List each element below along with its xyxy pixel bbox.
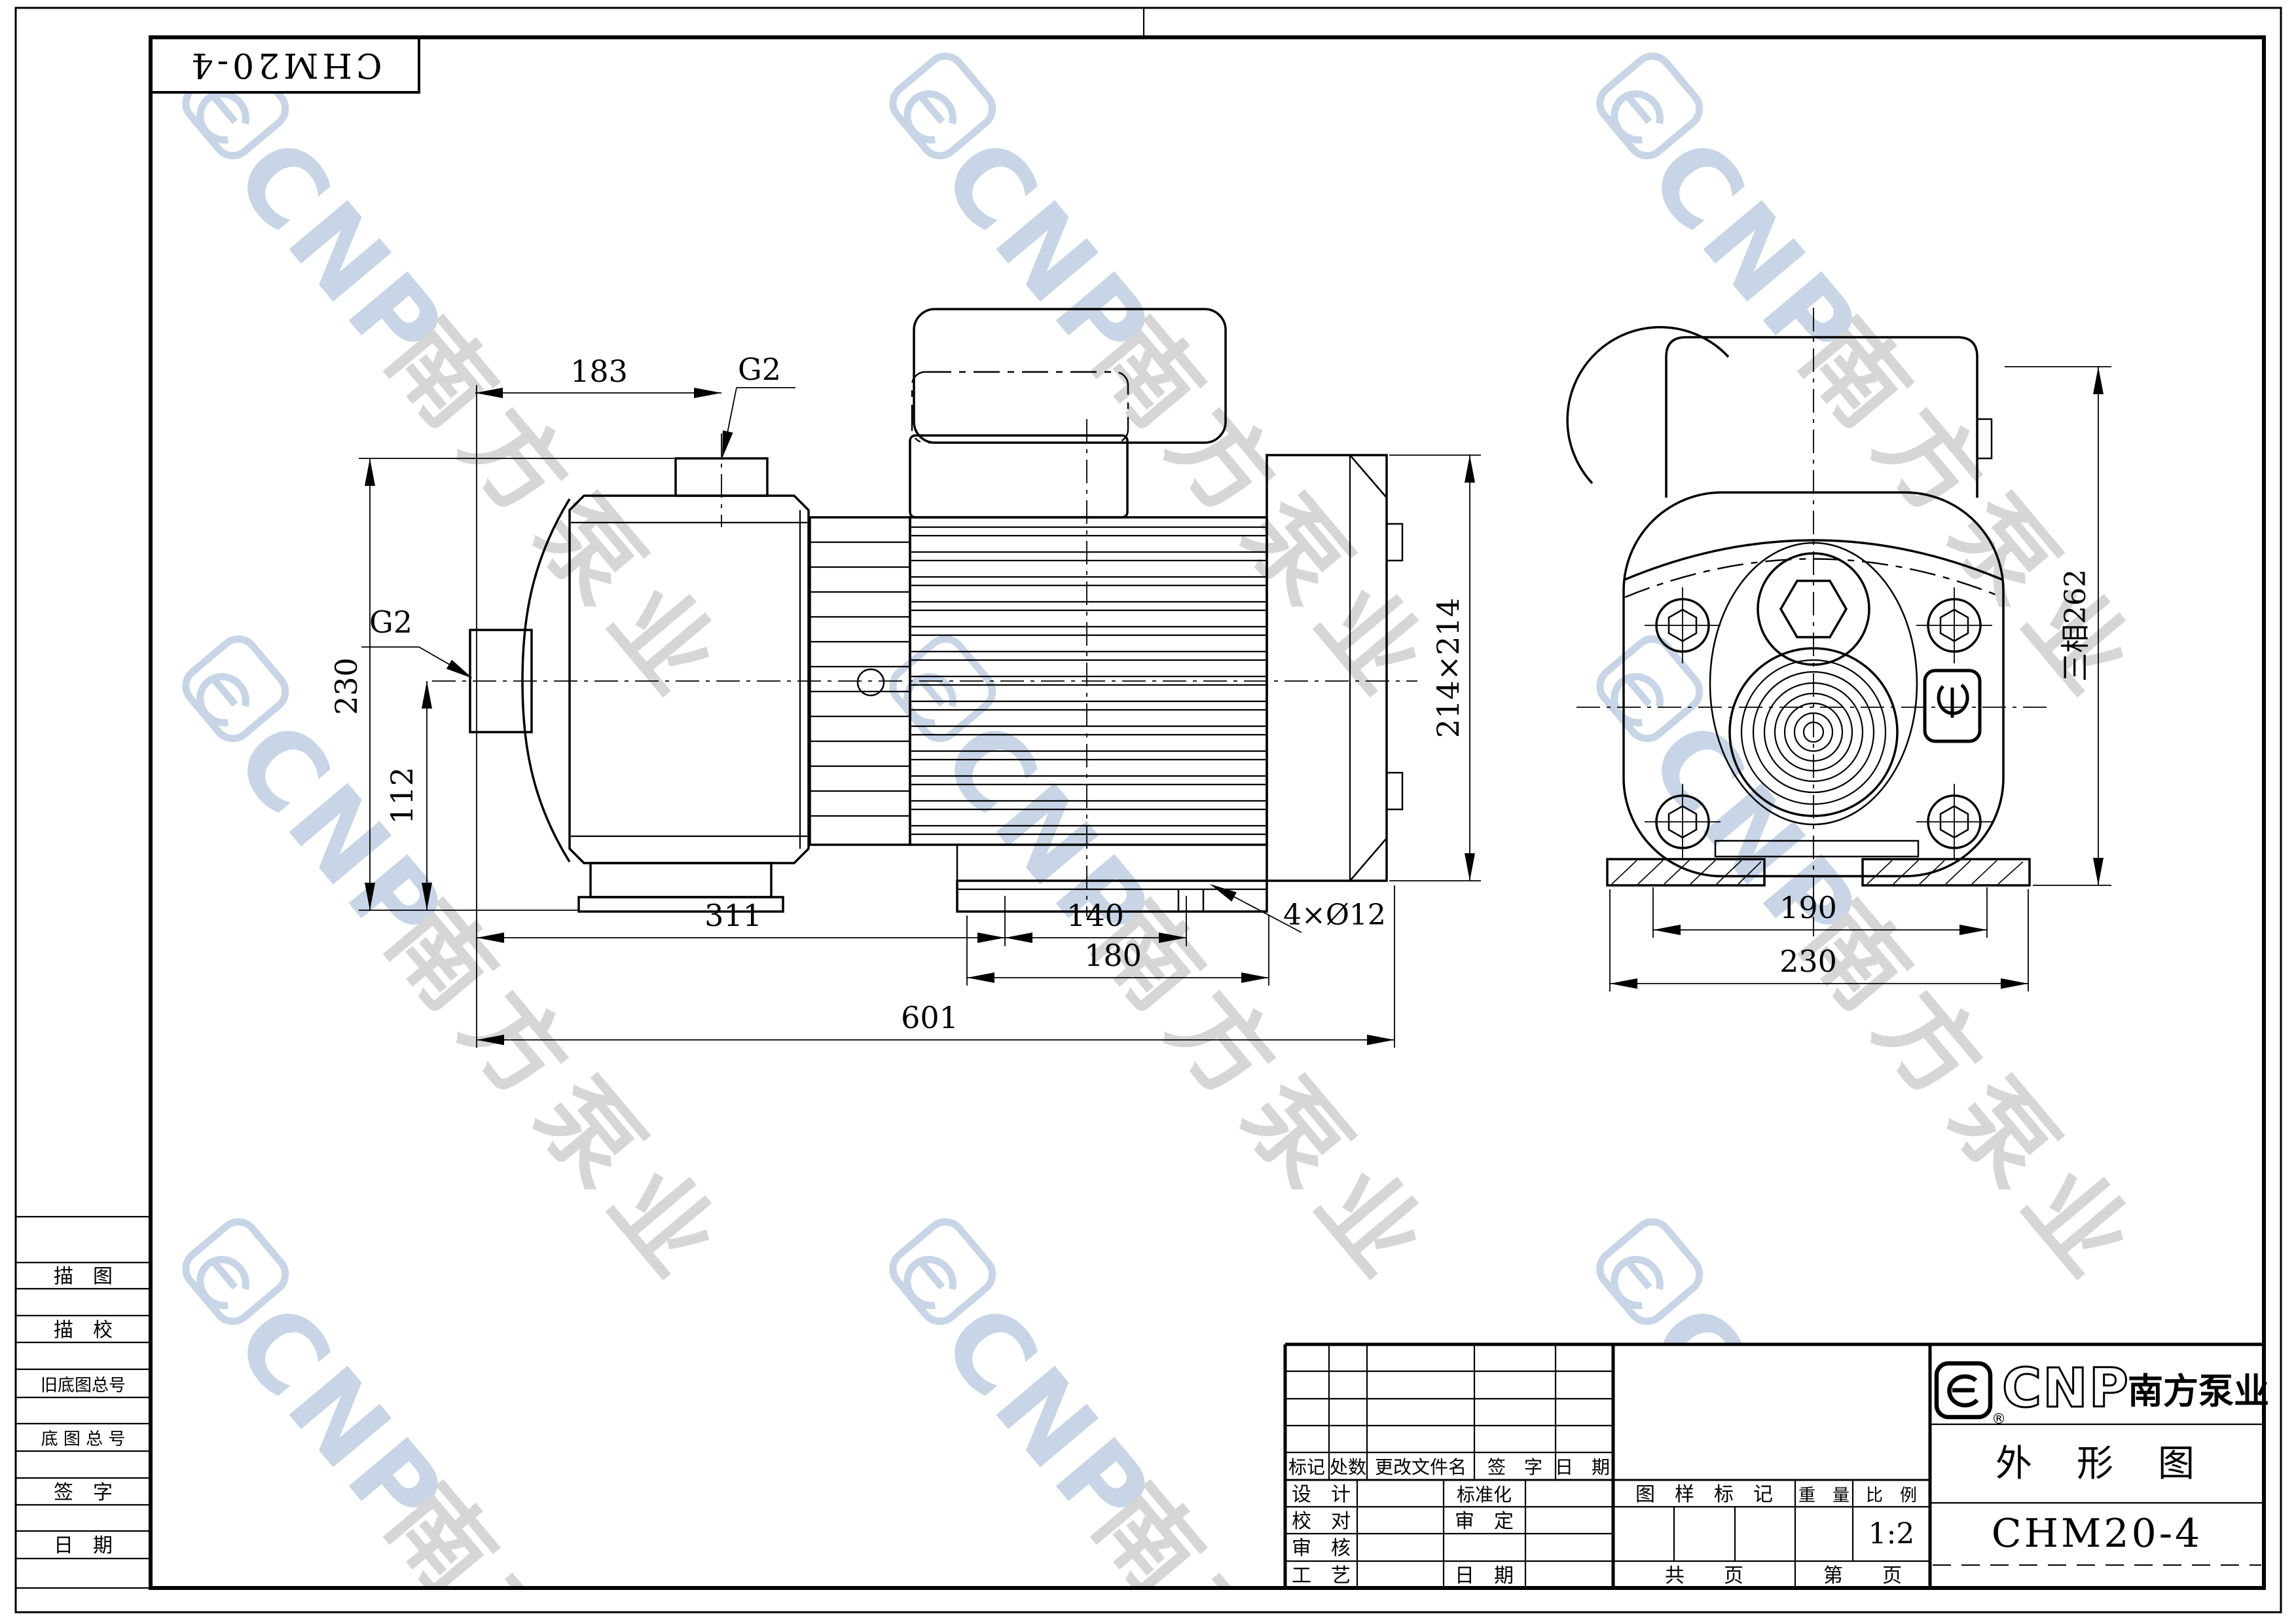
dim-230-end: 230 <box>1779 944 1837 979</box>
rev-count-header: 处数 <box>1330 1456 1366 1478</box>
sidebar-item-base-no: 底 图 总 号 <box>41 1430 126 1449</box>
logo-cjk-text: 南方泵业 <box>2128 1371 2269 1412</box>
sidebar-item-date: 日 期 <box>54 1534 113 1557</box>
dim-190: 190 <box>1779 890 1837 925</box>
rev-sign-header: 签 字 <box>1487 1456 1542 1478</box>
dim-262-three-phase: 三相262 <box>2059 569 2092 682</box>
rev-date-header: 日 期 <box>1555 1456 1610 1478</box>
sig-approve: 审 定 <box>1455 1510 1514 1533</box>
sig-design: 设 计 <box>1292 1483 1351 1506</box>
sidebar-item-trace: 描 图 <box>54 1265 113 1288</box>
stamp-scale-value: 1:2 <box>1868 1517 1915 1551</box>
stamp-total-pages: 共 页 <box>1665 1564 1743 1587</box>
dim-g2-top: G2 <box>738 352 781 387</box>
sig-standard: 标准化 <box>1457 1484 1512 1505</box>
rev-file-header: 更改文件名 <box>1375 1456 1467 1478</box>
stamp-scale: 比 例 <box>1866 1486 1917 1505</box>
drawing-title: 外 形 图 <box>1995 1443 2198 1485</box>
stamp-header: 图 样 标 记 <box>1635 1483 1773 1506</box>
corner-model-label: CHM20-4 <box>187 45 382 84</box>
sig-check: 校 对 <box>1292 1510 1351 1533</box>
dim-311: 311 <box>704 898 762 933</box>
sig-process: 工 艺 <box>1292 1564 1351 1587</box>
sig-date: 日 期 <box>1455 1564 1514 1587</box>
sidebar-item-old-base-no: 旧底图总号 <box>41 1376 126 1395</box>
dim-g2-left: G2 <box>369 604 412 640</box>
sidebar-item-trace-check: 描 校 <box>54 1319 113 1342</box>
model-corner-box: CHM20-4 <box>151 37 419 92</box>
dim-183: 183 <box>570 354 628 389</box>
drawing-canvas: CNP 南方泵业 <box>0 0 2296 1624</box>
dim-112: 112 <box>384 767 420 824</box>
dim-230-side: 230 <box>329 657 364 715</box>
dim-bolt-holes: 4×Ø12 <box>1283 898 1386 932</box>
dim-180: 180 <box>1084 938 1142 973</box>
dim-214x214: 214×214 <box>1430 598 1466 738</box>
rev-mark-header: 标记 <box>1288 1456 1325 1478</box>
dim-601: 601 <box>901 1000 958 1035</box>
stamp-page-no: 第 页 <box>1823 1564 1902 1587</box>
sidebar-item-signature: 签 字 <box>54 1481 113 1504</box>
drawing-sheet: CNP 南方泵业 <box>0 0 2296 1624</box>
stamp-weight: 重 量 <box>1798 1486 1850 1505</box>
sig-audit: 审 核 <box>1292 1537 1351 1560</box>
drawing-model: CHM20-4 <box>1992 1511 2202 1557</box>
logo-cnp-text: CNP <box>2002 1357 2130 1420</box>
dim-140: 140 <box>1066 898 1124 933</box>
